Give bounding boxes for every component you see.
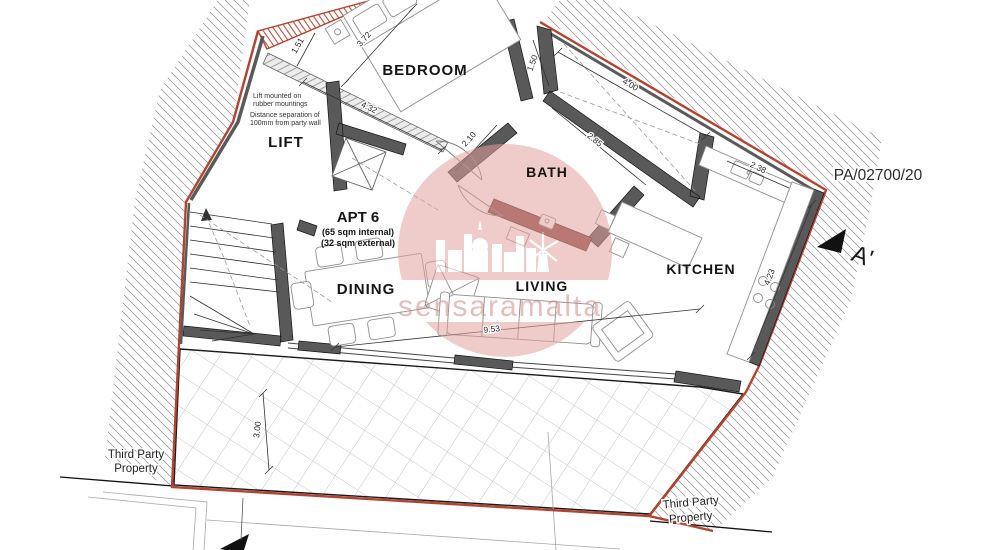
note-sep-2: 100mm from party wall [250,120,321,127]
planning-reference: PA/02700/20 [834,167,923,184]
section-line-bottom [241,498,243,540]
room-label-lift: LIFT [268,134,304,151]
apartment-name: APT 6 [337,209,380,226]
watermark-circle-bottom [426,322,584,357]
room-label-dining: DINING [337,281,396,298]
third-party-left-2: Property [114,463,158,475]
note-lift-1: Lift mounted on [253,93,301,100]
island-stool-2 [609,238,629,258]
apartment-area-internal: (65 sqm internal) [322,227,394,237]
room-label-bath: BATH [526,164,568,180]
section-arrow-bottom [220,534,249,550]
room-label-kitchen: KITCHEN [666,261,735,277]
dim-living-width: 9.53 [483,323,501,335]
stair-direction-arrow [201,208,212,221]
apartment-area-external: (32 sqm external) [321,238,395,248]
dim-terrace-depth: 3.00 [251,421,263,439]
watermark-text: sensaramalta [398,290,602,323]
dim-bath-side: 2.10 [460,129,479,148]
stairs [190,208,279,341]
third-party-left-1: Third Party [108,449,164,461]
room-label-bedroom: BEDROOM [382,62,467,79]
note-sep-1: Distance separation of [250,112,320,119]
dim-shaft-width: 1.50 [525,53,540,72]
room-label-living: LIVING [516,278,569,294]
watermark: sensaramalta [398,144,612,357]
floor-plan-drawing: sensaramalta BEDROOM LIFT BATH KITCHEN D… [0,0,1000,550]
kitchen-island [608,202,702,268]
note-lift-2: rubber mountings [253,101,308,108]
floorplan-canvas: sensaramalta BEDROOM LIFT BATH KITCHEN D… [0,0,1000,550]
